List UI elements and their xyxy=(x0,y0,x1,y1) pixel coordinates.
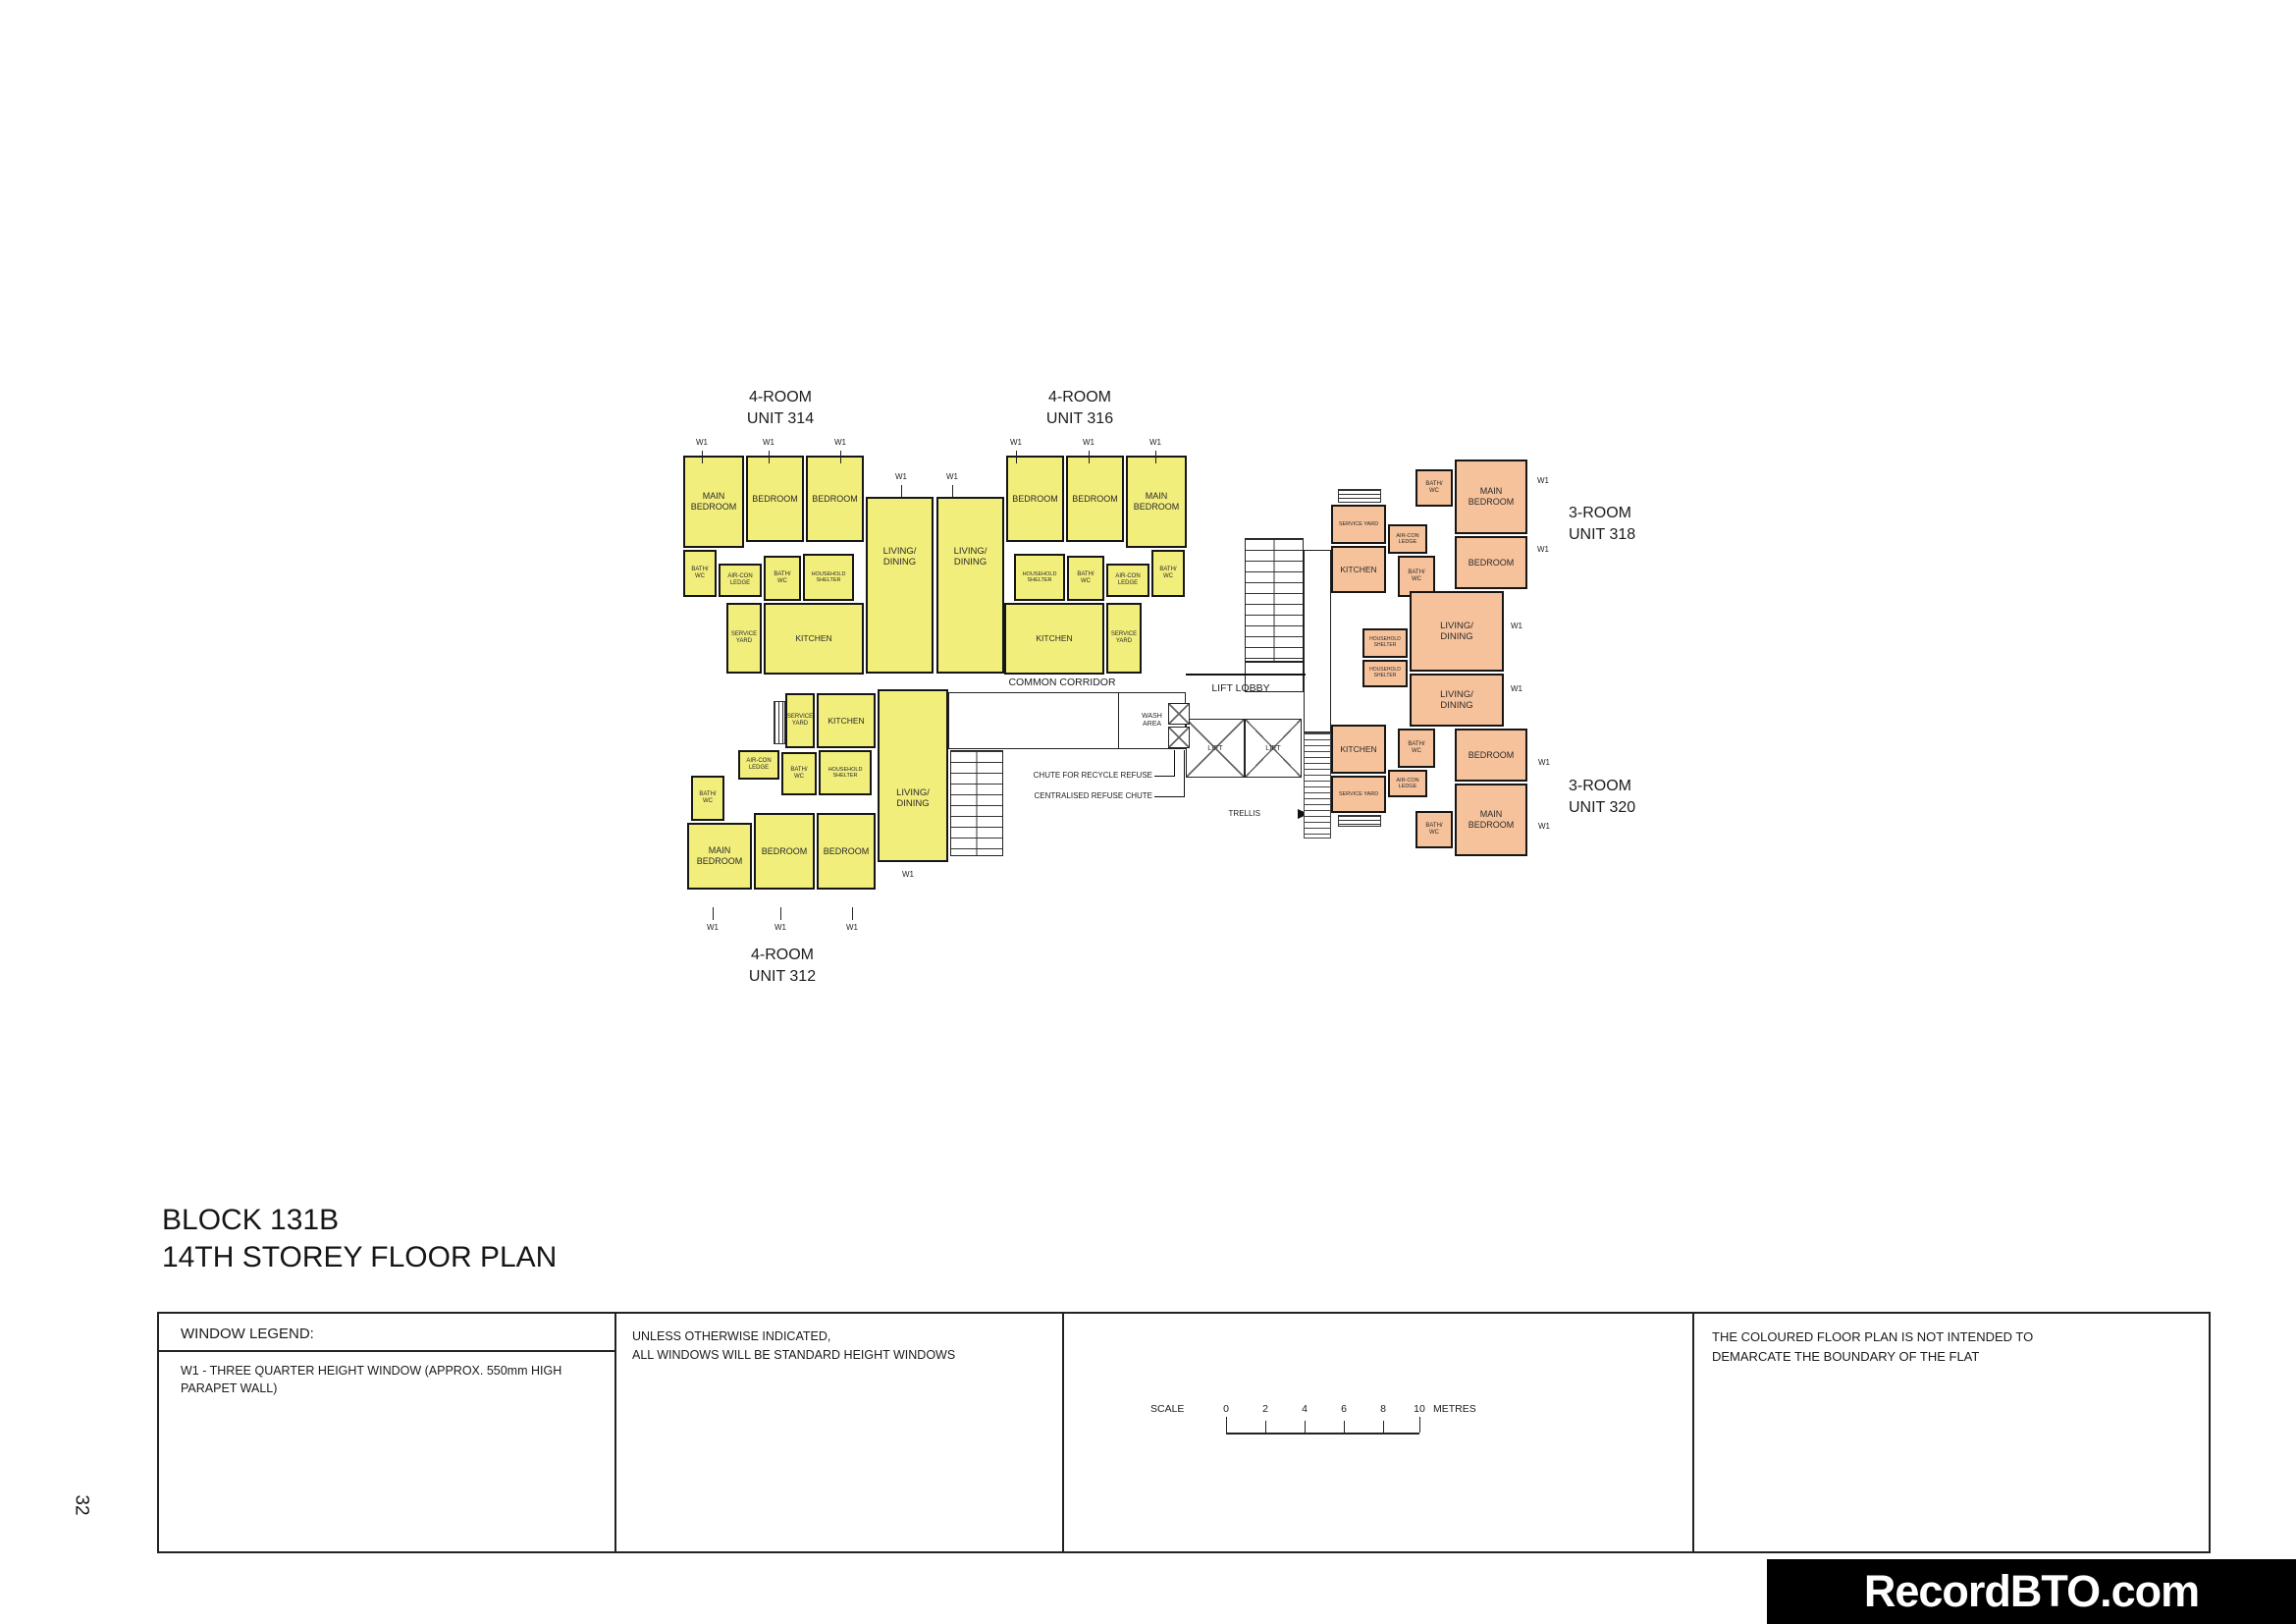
w1-marker: W1 xyxy=(895,472,907,481)
scale-tick xyxy=(1419,1417,1420,1433)
trellis-label: TRELLIS xyxy=(1229,809,1260,818)
u312-service-yard: SERVICE YARD xyxy=(785,693,815,748)
u320-kitchen: KITCHEN xyxy=(1331,725,1386,774)
page-title: BLOCK 131B 14TH STOREY FLOOR PLAN xyxy=(162,1202,557,1276)
u312-household-shelter: HOUSEHOLD SHELTER xyxy=(819,750,872,795)
u312-bath-wc-1: BATH/ WC xyxy=(691,776,724,821)
recycle-refuse-chute xyxy=(1168,703,1190,725)
u314-bath-wc-2: BATH/ WC xyxy=(764,556,801,601)
vent-318 xyxy=(1338,489,1381,503)
legend-table: WINDOW LEGEND: W1 - THREE QUARTER HEIGHT… xyxy=(157,1312,2211,1553)
w1-marker: W1 xyxy=(707,923,719,932)
scale-tick xyxy=(1383,1421,1384,1433)
w1-window-tick xyxy=(1016,451,1017,463)
u314-bath-wc-1: BATH/ WC xyxy=(683,550,717,597)
scale-tick-label: 10 xyxy=(1414,1403,1425,1415)
lift-lobby-passage xyxy=(1304,550,1331,732)
u312-bedroom-2: BEDROOM xyxy=(817,813,876,890)
household-shelter-b: HOUSEHOLD SHELTER xyxy=(1362,660,1408,687)
w1-marker: W1 xyxy=(1538,822,1550,831)
w1-marker: W1 xyxy=(763,438,774,447)
watermark-text: RecordBTO.com xyxy=(1864,1566,2199,1617)
u316-bath-wc-2: BATH/ WC xyxy=(1067,556,1104,601)
unit-312-title: 4-ROOM UNIT 312 xyxy=(749,945,816,988)
unit-314-title: 4-ROOM UNIT 314 xyxy=(747,387,814,430)
u316-aircon-ledge: AIR-CON LEDGE xyxy=(1106,564,1149,597)
w1-marker: W1 xyxy=(834,438,846,447)
common-corridor-label: COMMON CORRIDOR xyxy=(1008,677,1115,688)
u314-living-dining: LIVING/ DINING xyxy=(866,497,934,674)
storey-title: 14TH STOREY FLOOR PLAN xyxy=(162,1239,557,1276)
scale-label: SCALE xyxy=(1150,1403,1184,1415)
u314-kitchen: KITCHEN xyxy=(764,603,864,675)
w1-window-tick xyxy=(1155,451,1156,463)
scale-tick xyxy=(1226,1417,1227,1433)
leader-line xyxy=(1186,674,1306,676)
coloured-note-line2: DEMARCATE THE BOUNDARY OF THE FLAT xyxy=(1712,1347,2033,1367)
u316-service-yard: SERVICE YARD xyxy=(1106,603,1142,674)
w1-marker: W1 xyxy=(1149,438,1161,447)
u314-main-bedroom: MAIN BEDROOM xyxy=(683,456,744,548)
leader-line xyxy=(1154,776,1174,777)
u316-household-shelter: HOUSEHOLD SHELTER xyxy=(1014,554,1065,601)
u312-aircon-ledge: AIR-CON LEDGE xyxy=(738,750,779,780)
scale-tick-label: 2 xyxy=(1262,1403,1268,1415)
u318-living-dining: LIVING/ DINING xyxy=(1410,591,1504,672)
scale-tick-label: 6 xyxy=(1341,1403,1347,1415)
u316-living-dining: LIVING/ DINING xyxy=(936,497,1004,674)
w1-marker: W1 xyxy=(846,923,858,932)
w1-window-tick xyxy=(780,907,781,920)
block-title: BLOCK 131B xyxy=(162,1202,557,1239)
w1-window-tick xyxy=(952,485,953,498)
unit-318-title: 3-ROOM UNIT 318 xyxy=(1569,503,1635,546)
vent-312 xyxy=(774,701,785,744)
u312-living-dining: LIVING/ DINING xyxy=(878,689,948,862)
unit-316-title: 4-ROOM UNIT 316 xyxy=(1046,387,1113,430)
scale-tick xyxy=(1265,1421,1266,1433)
w1-window-tick xyxy=(1089,451,1090,463)
staircase-2 xyxy=(950,750,1003,856)
u316-bedroom-2: BEDROOM xyxy=(1066,456,1124,542)
u314-bedroom-1: BEDROOM xyxy=(746,456,804,542)
leader-line xyxy=(1154,796,1184,797)
centralised-refuse-chute xyxy=(1168,727,1190,748)
u318-bath-wc-1: BATH/ WC xyxy=(1415,469,1453,507)
scale-tick-label: 4 xyxy=(1302,1403,1308,1415)
u320-bath-wc-1: BATH/ WC xyxy=(1415,811,1453,848)
leader-line xyxy=(1174,750,1175,777)
w1-window-tick xyxy=(769,451,770,463)
w1-window-tick xyxy=(702,451,703,463)
w1-marker: W1 xyxy=(1511,622,1522,630)
u320-service-yard: SERVICE YARD xyxy=(1331,776,1386,813)
u314-aircon-ledge: AIR-CON LEDGE xyxy=(719,564,762,597)
u318-kitchen: KITCHEN xyxy=(1331,546,1386,593)
u316-kitchen: KITCHEN xyxy=(1004,603,1104,675)
lift-lobby-label: LIFT LOBBY xyxy=(1211,682,1269,694)
trellis-strip xyxy=(1304,732,1331,839)
w1-marker: W1 xyxy=(946,472,958,481)
u316-bedroom-1: BEDROOM xyxy=(1006,456,1064,542)
u320-bath-wc-2: BATH/ WC xyxy=(1398,729,1435,768)
coloured-plan-note: THE COLOURED FLOOR PLAN IS NOT INTENDED … xyxy=(1712,1327,2033,1367)
u318-bedroom: BEDROOM xyxy=(1455,536,1527,589)
w1-marker: W1 xyxy=(774,923,786,932)
u316-bath-wc-1: BATH/ WC xyxy=(1151,550,1185,597)
u314-household-shelter: HOUSEHOLD SHELTER xyxy=(803,554,854,601)
u320-aircon-ledge: AIR-CON LEDGE xyxy=(1388,770,1427,797)
u320-living-dining: LIVING/ DINING xyxy=(1410,674,1504,727)
scale-bar xyxy=(1226,1433,1419,1435)
w1-window-tick xyxy=(840,451,841,463)
scale-unit-label: METRES xyxy=(1433,1403,1476,1415)
u316-main-bedroom: MAIN BEDROOM xyxy=(1126,456,1187,548)
scale-tick-label: 0 xyxy=(1223,1403,1229,1415)
scale-tick xyxy=(1344,1421,1345,1433)
chute-recycle-label: CHUTE FOR RECYCLE REFUSE xyxy=(1034,771,1152,780)
w1-marker: W1 xyxy=(696,438,708,447)
w1-marker: W1 xyxy=(1538,758,1550,767)
scale-tick-label: 8 xyxy=(1380,1403,1386,1415)
coloured-note-line1: THE COLOURED FLOOR PLAN IS NOT INTENDED … xyxy=(1712,1327,2033,1347)
lift-1: LIFT xyxy=(1186,719,1245,778)
vent-320 xyxy=(1338,815,1381,827)
lift-2: LIFT xyxy=(1245,719,1302,778)
u318-service-yard: SERVICE YARD xyxy=(1331,505,1386,544)
w1-window-tick xyxy=(901,485,902,498)
w1-marker: W1 xyxy=(1537,476,1549,485)
w1-marker: W1 xyxy=(1537,545,1549,554)
w1-window-tick xyxy=(713,907,714,920)
staircase-1 xyxy=(1245,538,1304,662)
chute-central-label: CENTRALISED REFUSE CHUTE xyxy=(1035,791,1152,800)
w1-marker: W1 xyxy=(1511,684,1522,693)
u312-kitchen: KITCHEN xyxy=(817,693,876,748)
u314-bedroom-2: BEDROOM xyxy=(806,456,864,542)
u314-service-yard: SERVICE YARD xyxy=(726,603,762,674)
scale-tick xyxy=(1305,1421,1306,1433)
w1-marker: W1 xyxy=(1010,438,1022,447)
household-shelter-a: HOUSEHOLD SHELTER xyxy=(1362,628,1408,658)
u318-main-bedroom: MAIN BEDROOM xyxy=(1455,460,1527,534)
leader-line xyxy=(1184,750,1185,797)
u320-bedroom: BEDROOM xyxy=(1455,729,1527,782)
w1-window-tick xyxy=(852,907,853,920)
u312-bedroom-1: BEDROOM xyxy=(754,813,815,890)
page-number: 32 xyxy=(71,1494,92,1515)
unit-320-title: 3-ROOM UNIT 320 xyxy=(1569,776,1635,819)
w1-marker: W1 xyxy=(1083,438,1095,447)
u312-bath-wc-2: BATH/ WC xyxy=(781,752,817,795)
w1-marker: W1 xyxy=(902,870,914,879)
u318-aircon-ledge: AIR-CON LEDGE xyxy=(1388,524,1427,554)
watermark-banner: RecordBTO.com xyxy=(1767,1559,2296,1624)
u312-main-bedroom: MAIN BEDROOM xyxy=(687,823,752,890)
u320-main-bedroom: MAIN BEDROOM xyxy=(1455,784,1527,856)
